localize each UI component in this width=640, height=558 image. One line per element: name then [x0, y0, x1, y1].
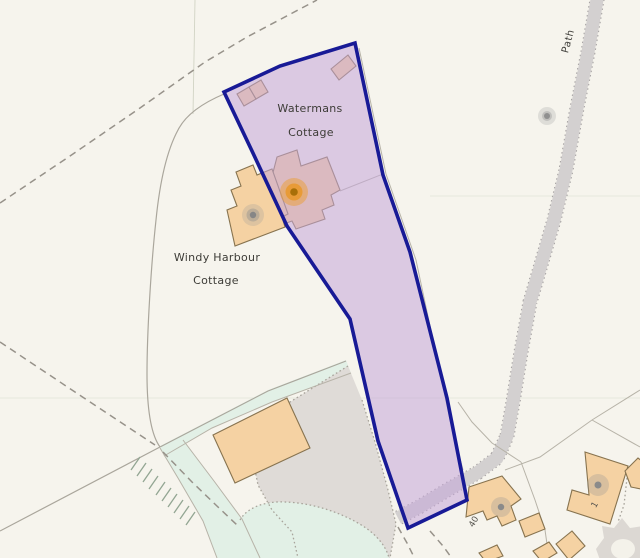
- poi-marker-no-40: [491, 497, 511, 517]
- subject-property-marker[interactable]: [280, 178, 308, 206]
- poi-marker-dot: [544, 113, 550, 119]
- label-watermans-line1: Watermans: [277, 102, 342, 115]
- poi-marker-dot: [595, 482, 602, 489]
- subject-marker-dot: [290, 188, 298, 196]
- poi-marker-dot: [250, 212, 256, 218]
- label-windy-harbour-line1: Windy Harbour: [174, 251, 260, 264]
- map-canvas[interactable]: Watermans Cottage Windy Harbour Cottage …: [0, 0, 640, 558]
- poi-marker-no-1: [587, 474, 609, 496]
- poi-marker-windy-harbour: [242, 204, 264, 226]
- label-windy-harbour-line2: Cottage: [193, 274, 239, 287]
- poi-marker-path: [538, 107, 556, 125]
- poi-marker-dot: [498, 504, 504, 510]
- label-watermans-line2: Cottage: [288, 126, 334, 139]
- map-svg[interactable]: Watermans Cottage Windy Harbour Cottage …: [0, 0, 640, 558]
